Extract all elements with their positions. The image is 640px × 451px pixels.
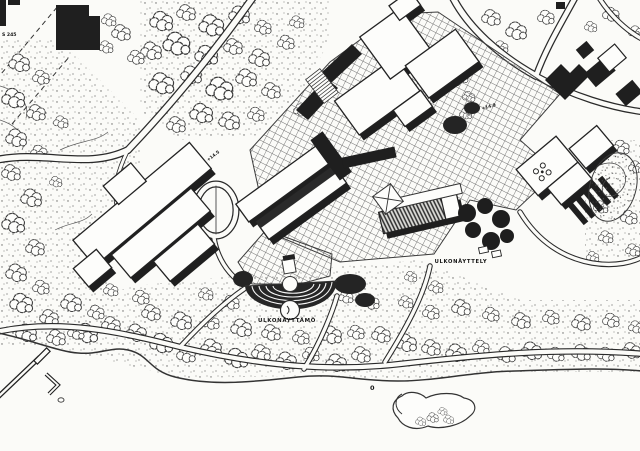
exhibition-label: ULKONÄYTTELY: [435, 258, 488, 265]
edge-note: S 245: [2, 32, 17, 38]
site-plan-map: ULKONÄYTTÄMÖ ULKONÄYTTELY +14.5 +14.9 S …: [0, 0, 640, 451]
stage-tower: [282, 254, 296, 274]
depth-mark: 0: [370, 384, 375, 392]
orchestra-circle: [281, 301, 300, 320]
stage-circle: [283, 277, 298, 292]
amphitheater-label: ULKONÄYTTÄMÖ: [258, 317, 316, 324]
rock: [58, 398, 64, 402]
